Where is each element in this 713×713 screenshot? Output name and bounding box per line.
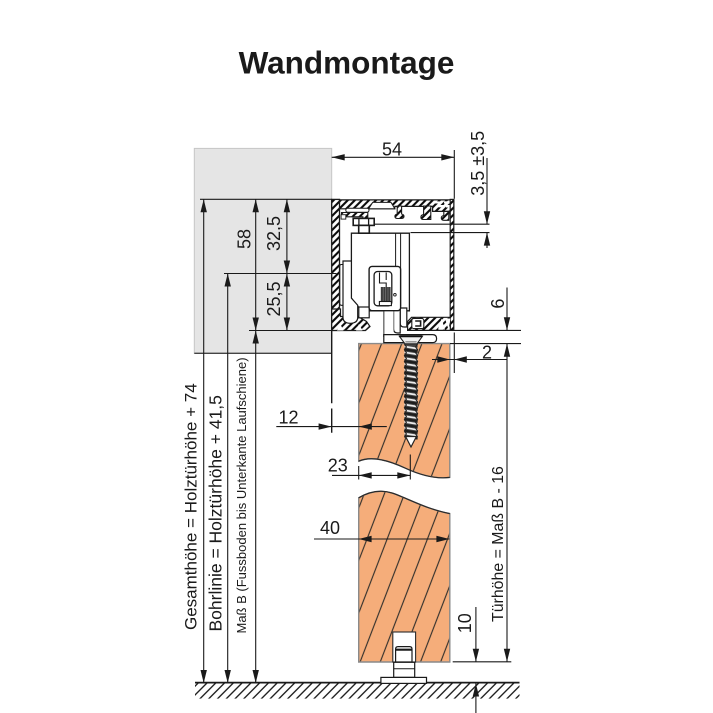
svg-text:3,5 ±3,5: 3,5 ±3,5 xyxy=(468,131,488,196)
svg-text:Türhöhe = Maß B - 16: Türhöhe = Maß B - 16 xyxy=(490,466,507,622)
svg-text:Bohrlinie = Holztürhöhe + 41,5: Bohrlinie = Holztürhöhe + 41,5 xyxy=(206,395,226,631)
svg-text:54: 54 xyxy=(382,140,402,160)
svg-text:23: 23 xyxy=(328,455,348,475)
svg-text:12: 12 xyxy=(278,407,298,427)
svg-text:Gesamthöhe = Holztürhöhe + 74: Gesamthöhe = Holztürhöhe + 74 xyxy=(182,383,201,630)
svg-text:25,5: 25,5 xyxy=(264,281,284,316)
svg-text:58: 58 xyxy=(235,229,255,249)
svg-text:Wandmontage: Wandmontage xyxy=(239,45,455,81)
svg-text:2: 2 xyxy=(482,342,492,362)
svg-text:10: 10 xyxy=(455,613,475,633)
svg-text:Maß B (Fussboden bis Unterkant: Maß B (Fussboden bis Unterkante Laufschi… xyxy=(234,357,249,633)
svg-text:32,5: 32,5 xyxy=(264,216,284,251)
svg-text:40: 40 xyxy=(320,518,340,538)
svg-text:6: 6 xyxy=(488,299,508,309)
